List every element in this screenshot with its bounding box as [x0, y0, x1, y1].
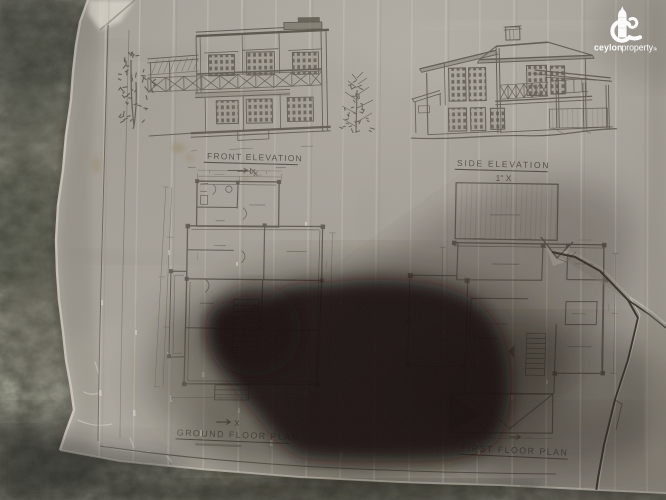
- svg-text:ceylon: ceylon: [594, 43, 622, 53]
- svg-text:lk: lk: [654, 47, 658, 53]
- svg-text:property: property: [622, 43, 654, 53]
